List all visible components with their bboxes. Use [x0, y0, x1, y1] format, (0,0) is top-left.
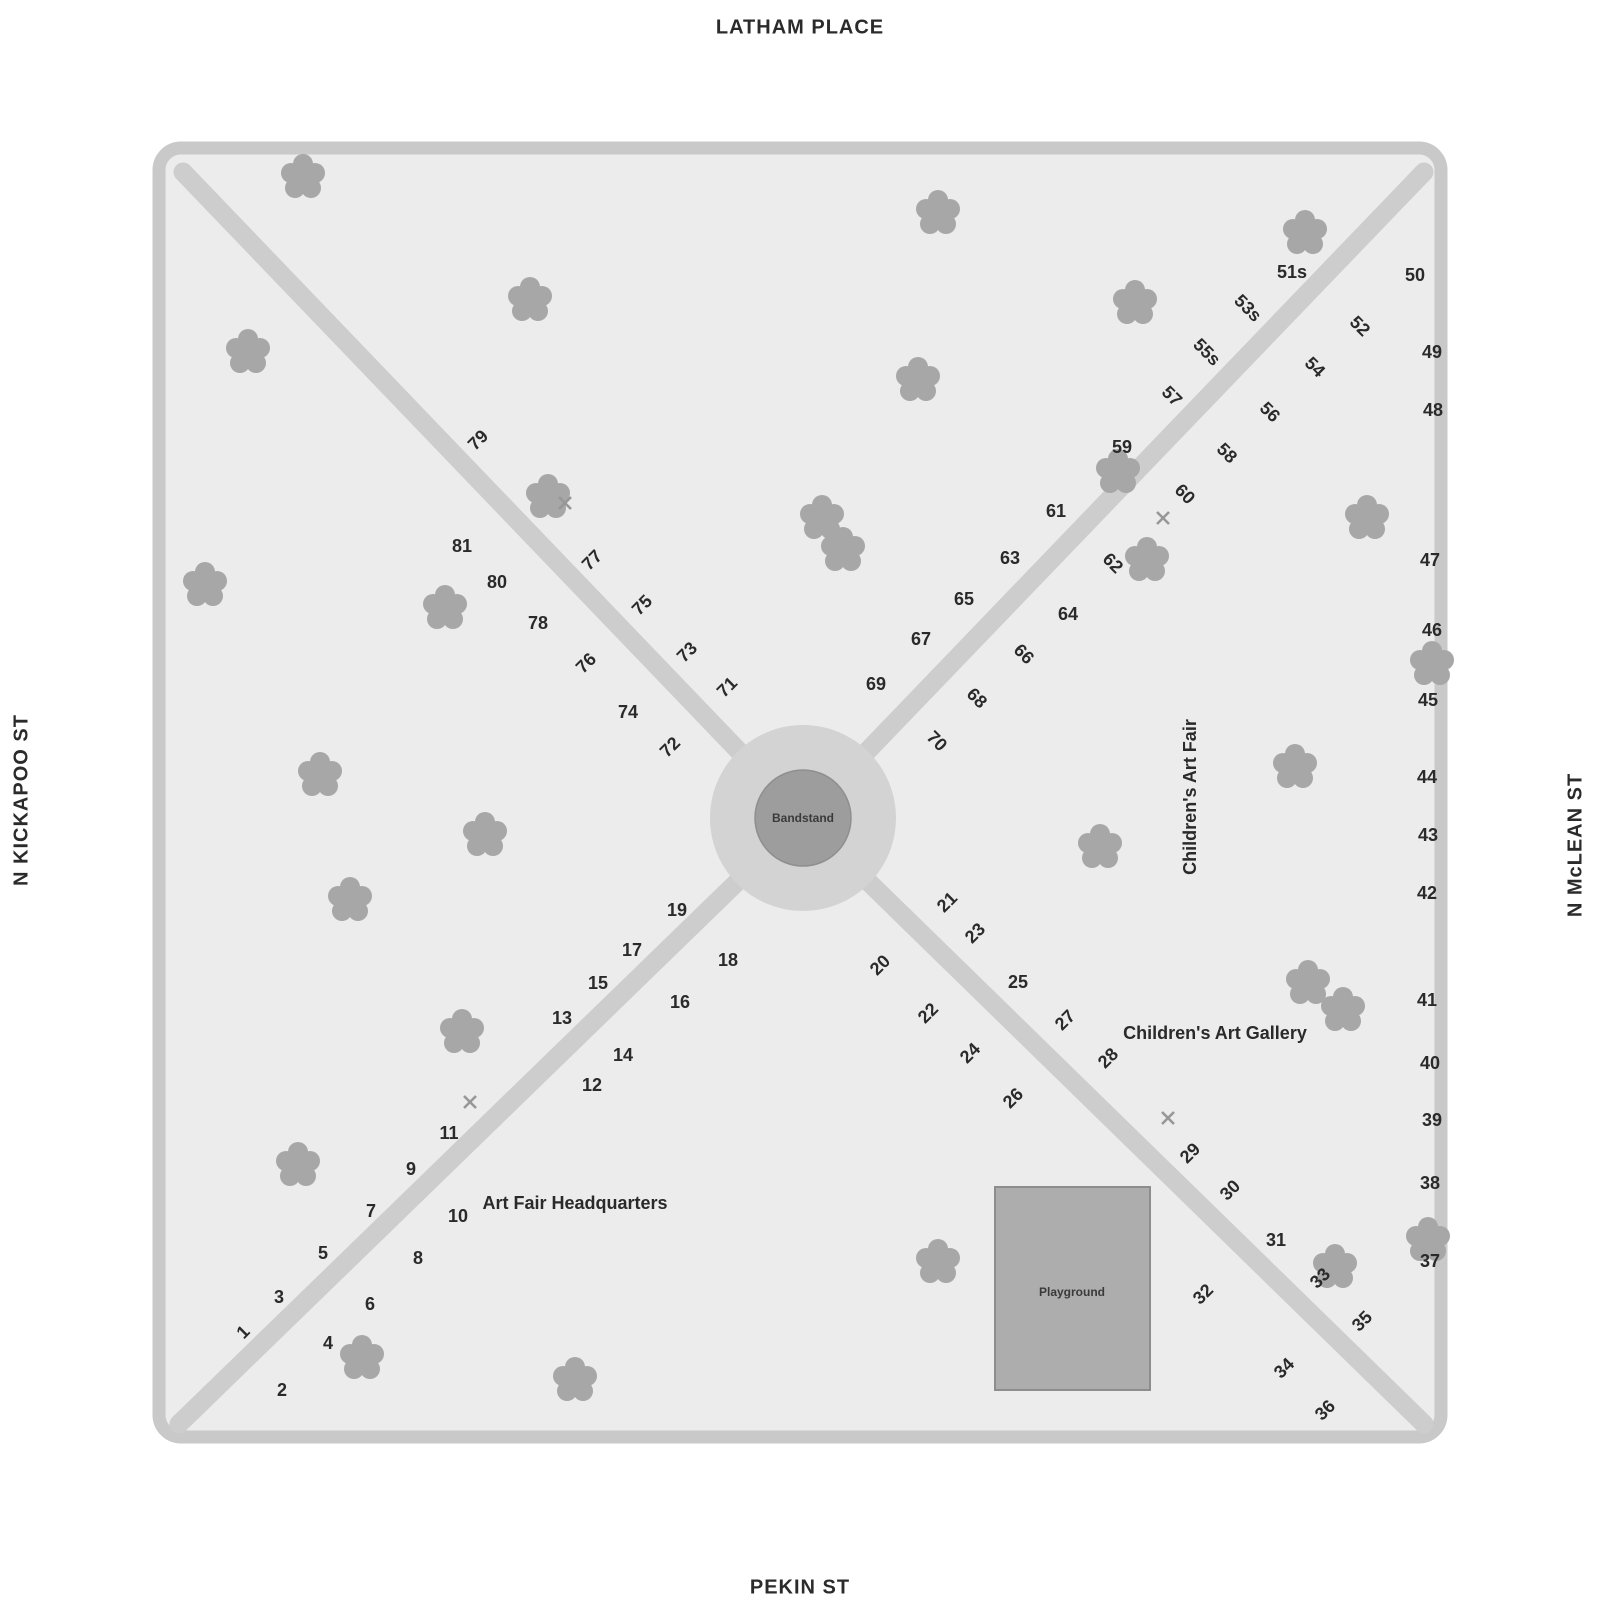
booth-label-47: 47	[1420, 550, 1440, 570]
booth-label-43: 43	[1418, 825, 1438, 845]
booth-label-3: 3	[274, 1287, 284, 1307]
playground-label: Playground	[1039, 1285, 1105, 1299]
booth-label-50: 50	[1405, 265, 1425, 285]
booth-label-2: 2	[277, 1380, 287, 1400]
booth-label-63: 63	[1000, 548, 1020, 568]
park-map-svg: Bandstand Playground Children's Art Fair…	[0, 0, 1614, 1615]
booth-label-18: 18	[718, 950, 738, 970]
booth-label-9: 9	[406, 1159, 416, 1179]
booth-label-46: 46	[1422, 620, 1442, 640]
booth-label-65: 65	[954, 589, 974, 609]
booth-label-6: 6	[365, 1294, 375, 1314]
booth-label-64: 64	[1058, 604, 1078, 624]
booth-label-74: 74	[618, 702, 638, 722]
street-label-n-mclean-st: N McLEAN ST	[1565, 773, 1588, 917]
area-label-art-fair-headquarters: Art Fair Headquarters	[482, 1193, 667, 1213]
booth-label-12: 12	[582, 1075, 602, 1095]
booth-label-44: 44	[1417, 767, 1437, 787]
bandstand-label: Bandstand	[772, 811, 834, 825]
street-label-latham-place: LATHAM PLACE	[716, 17, 884, 40]
street-label-pekin-st: PEKIN ST	[750, 1577, 850, 1600]
booth-label-25: 25	[1008, 972, 1028, 992]
booth-label-5: 5	[318, 1243, 328, 1263]
booth-label-39: 39	[1422, 1110, 1442, 1130]
booth-label-51s: 51s	[1277, 262, 1307, 282]
area-label-children-s-art-fair: Children's Art Fair	[1180, 719, 1200, 875]
booth-label-15: 15	[588, 973, 608, 993]
booth-label-81: 81	[452, 536, 472, 556]
booth-label-69: 69	[866, 674, 886, 694]
booth-label-8: 8	[413, 1248, 423, 1268]
booth-label-67: 67	[911, 629, 931, 649]
booth-label-16: 16	[670, 992, 690, 1012]
booth-label-61: 61	[1046, 501, 1066, 521]
area-label-children-s-art-gallery: Children's Art Gallery	[1123, 1023, 1307, 1043]
booth-label-48: 48	[1423, 400, 1443, 420]
booth-label-40: 40	[1420, 1053, 1440, 1073]
booth-label-31: 31	[1266, 1230, 1286, 1250]
booth-label-45: 45	[1418, 690, 1438, 710]
booth-label-80: 80	[487, 572, 507, 592]
booth-label-78: 78	[528, 613, 548, 633]
booth-label-17: 17	[622, 940, 642, 960]
booth-label-11: 11	[439, 1123, 458, 1143]
booth-label-37: 37	[1420, 1251, 1440, 1271]
booth-label-41: 41	[1417, 990, 1437, 1010]
art-fair-map: LATHAM PLACE PEKIN ST N KICKAPOO ST N Mc…	[0, 0, 1614, 1615]
booth-label-14: 14	[613, 1045, 633, 1065]
booth-label-49: 49	[1422, 342, 1442, 362]
booth-label-4: 4	[323, 1333, 333, 1353]
booth-label-42: 42	[1417, 883, 1437, 903]
street-label-n-kickapoo-st: N KICKAPOO ST	[11, 714, 34, 886]
booth-label-59: 59	[1112, 437, 1132, 457]
booth-label-7: 7	[366, 1201, 376, 1221]
booth-label-38: 38	[1420, 1173, 1440, 1193]
booth-label-19: 19	[667, 900, 687, 920]
booth-label-13: 13	[552, 1008, 572, 1028]
booth-label-10: 10	[448, 1206, 468, 1226]
